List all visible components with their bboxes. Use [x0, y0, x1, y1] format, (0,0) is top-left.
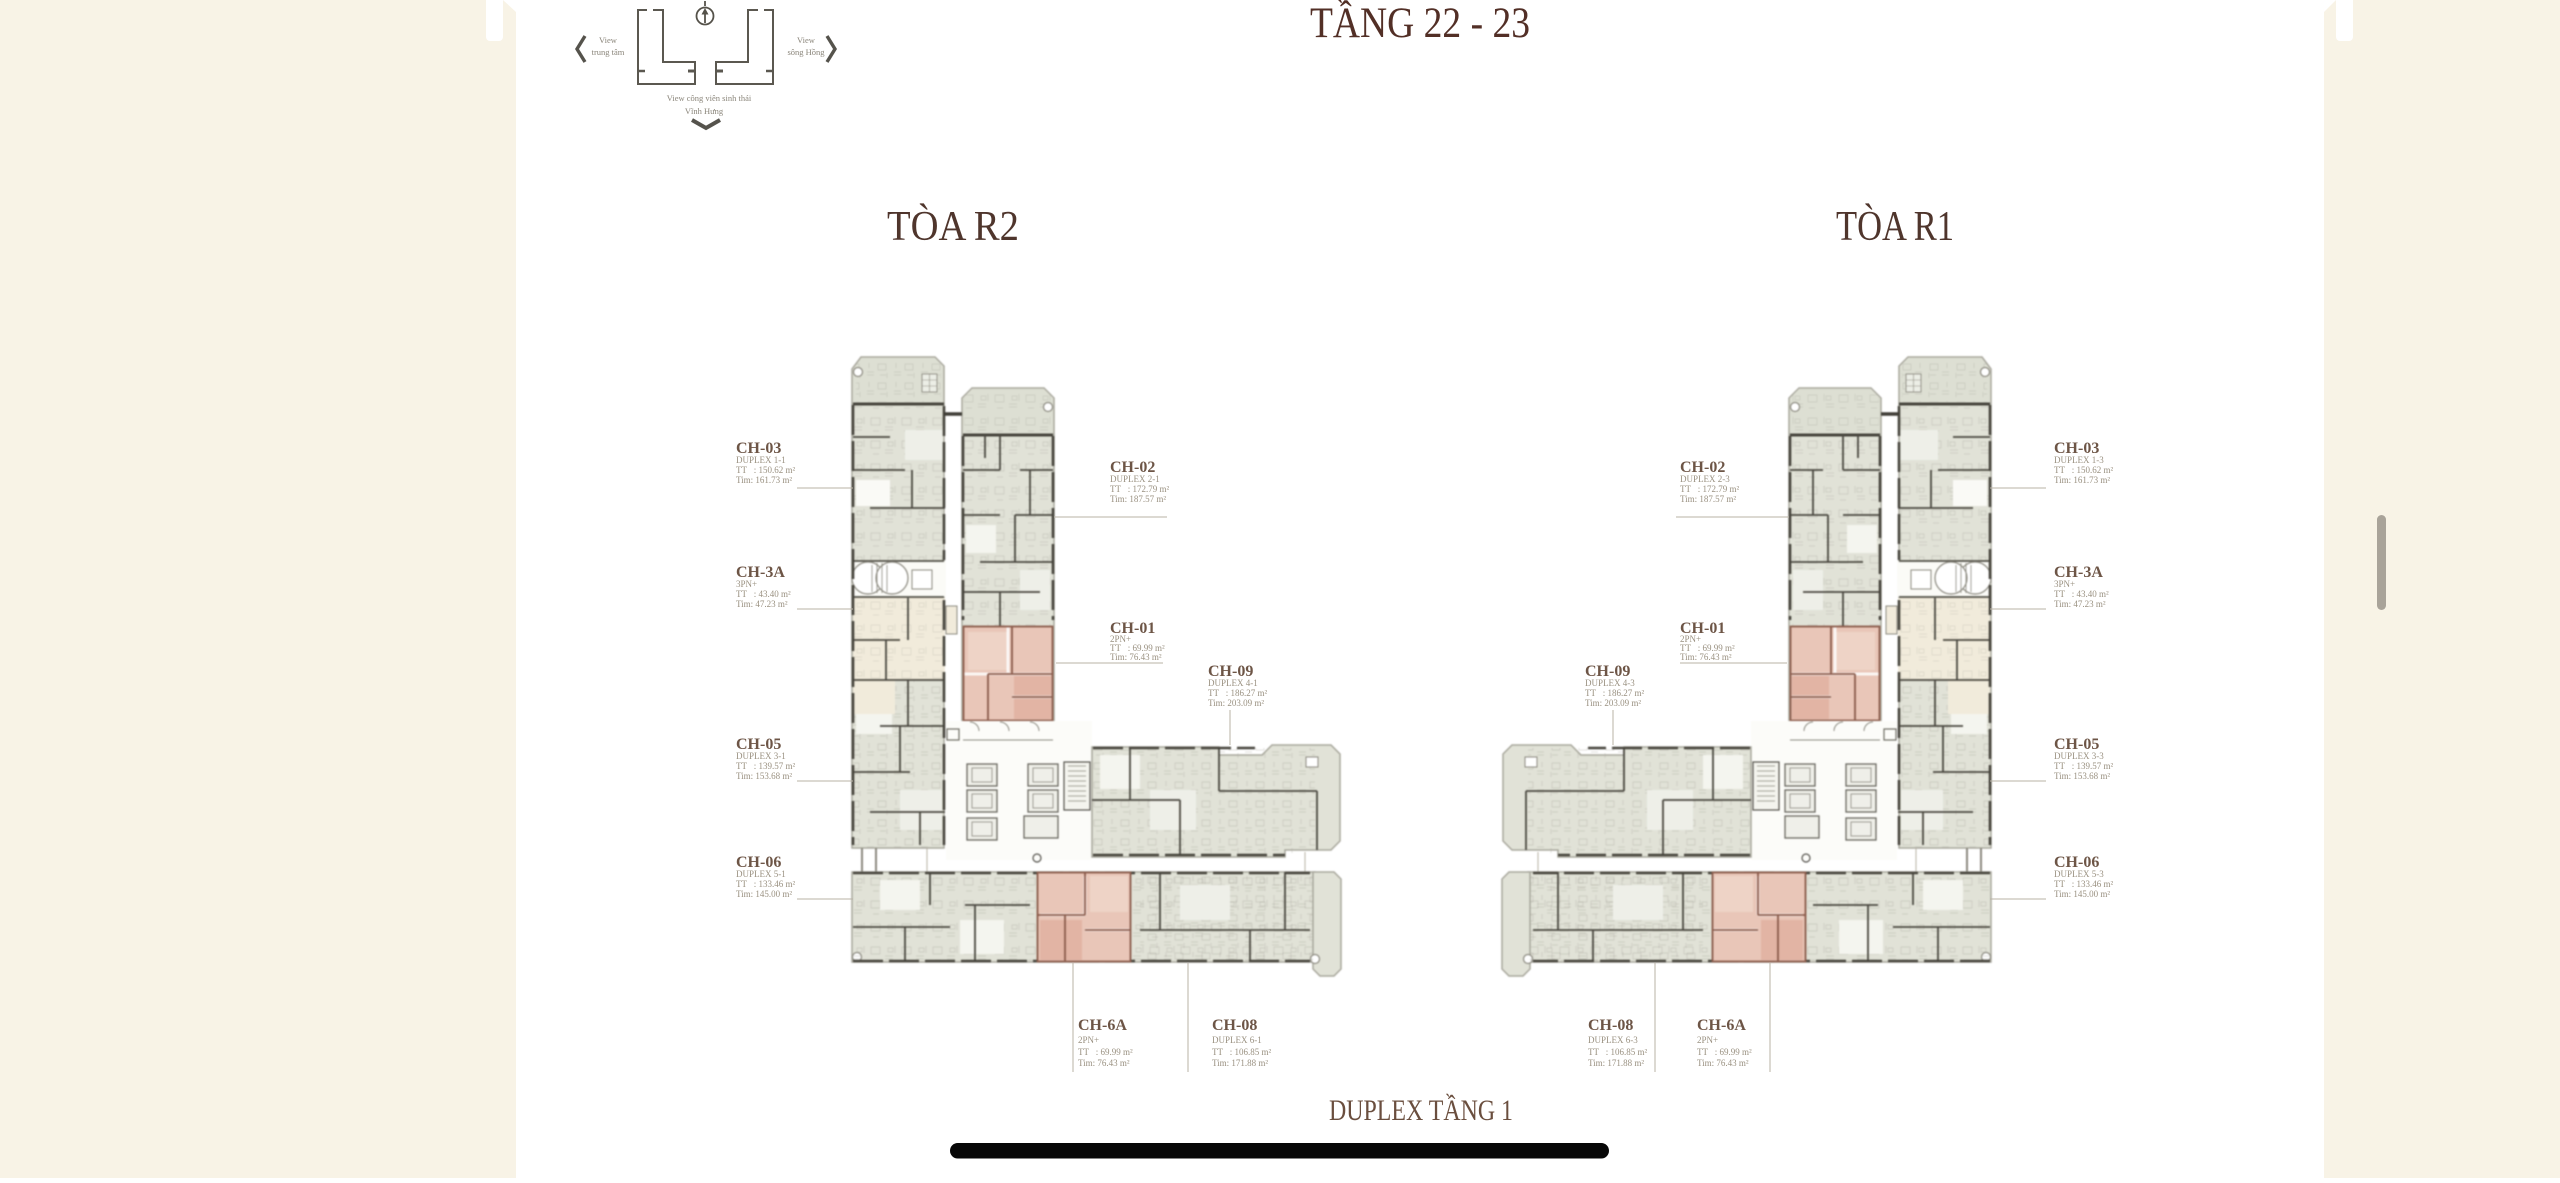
- svg-text:TẦNG 22 - 23: TẦNG 22 - 23: [1310, 0, 1530, 47]
- svg-text:TT : 186.27 m²: TT : 186.27 m²: [1585, 688, 1644, 698]
- svg-text:Tim: 171.88 m²: Tim: 171.88 m²: [1588, 1058, 1644, 1068]
- svg-text:TT : 106.85 m²: TT : 106.85 m²: [1212, 1047, 1271, 1057]
- svg-text:TT : 69.99 m²: TT : 69.99 m²: [1697, 1047, 1752, 1057]
- svg-text:View: View: [797, 35, 816, 45]
- svg-text:TÒA R2: TÒA R2: [887, 203, 1019, 250]
- svg-text:DUPLEX 1-3: DUPLEX 1-3: [2054, 455, 2104, 465]
- svg-text:Tim: 203.09 m²: Tim: 203.09 m²: [1208, 698, 1264, 708]
- svg-text:TT : 172.79 m²: TT : 172.79 m²: [1680, 484, 1739, 494]
- svg-text:TT : 186.27 m²: TT : 186.27 m²: [1208, 688, 1267, 698]
- svg-text:DUPLEX 6-3: DUPLEX 6-3: [1588, 1035, 1638, 1045]
- svg-text:Tim: 76.43 m²: Tim: 76.43 m²: [1110, 652, 1162, 662]
- svg-text:DUPLEX 5-3: DUPLEX 5-3: [2054, 869, 2104, 879]
- svg-text:Vĩnh Hưng: Vĩnh Hưng: [685, 106, 724, 116]
- svg-text:sông Hồng: sông Hồng: [787, 47, 825, 57]
- svg-text:TT : 139.57 m²: TT : 139.57 m²: [2054, 761, 2113, 771]
- svg-text:Tim: 145.00 m²: Tim: 145.00 m²: [736, 889, 792, 899]
- svg-text:Tim: 47.23 m²: Tim: 47.23 m²: [736, 599, 788, 609]
- svg-text:DUPLEX TẦNG 1: DUPLEX TẦNG 1: [1329, 1093, 1513, 1127]
- svg-text:CH-6A: CH-6A: [1078, 1017, 1127, 1034]
- svg-text:TÒA R1: TÒA R1: [1836, 203, 1954, 250]
- svg-text:DUPLEX 3-3: DUPLEX 3-3: [2054, 751, 2104, 761]
- svg-text:TT : 106.85 m²: TT : 106.85 m²: [1588, 1047, 1647, 1057]
- svg-text:3PN+: 3PN+: [736, 579, 757, 589]
- svg-text:Tim: 187.57 m²: Tim: 187.57 m²: [1680, 494, 1736, 504]
- svg-text:View công viên sinh thái: View công viên sinh thái: [667, 93, 752, 103]
- svg-text:CH-6A: CH-6A: [1697, 1017, 1746, 1034]
- svg-text:CH-08: CH-08: [1212, 1017, 1257, 1034]
- svg-text:Tim: 171.88 m²: Tim: 171.88 m²: [1212, 1058, 1268, 1068]
- svg-text:DUPLEX 1-1: DUPLEX 1-1: [736, 455, 786, 465]
- svg-text:TT : 150.62 m²: TT : 150.62 m²: [2054, 465, 2113, 475]
- svg-text:CH-08: CH-08: [1588, 1017, 1633, 1034]
- svg-text:TT : 139.57 m²: TT : 139.57 m²: [736, 761, 795, 771]
- svg-text:TT : 150.62 m²: TT : 150.62 m²: [736, 465, 795, 475]
- svg-text:Tim: 153.68 m²: Tim: 153.68 m²: [736, 771, 792, 781]
- svg-text:DUPLEX 4-3: DUPLEX 4-3: [1585, 678, 1635, 688]
- svg-text:View: View: [599, 35, 618, 45]
- svg-text:DUPLEX 3-1: DUPLEX 3-1: [736, 751, 786, 761]
- svg-text:DUPLEX 5-1: DUPLEX 5-1: [736, 869, 786, 879]
- svg-text:2PN+: 2PN+: [1078, 1035, 1099, 1045]
- svg-text:TT : 43.40 m²: TT : 43.40 m²: [2054, 589, 2109, 599]
- svg-text:Tim: 76.43 m²: Tim: 76.43 m²: [1078, 1058, 1130, 1068]
- svg-text:3PN+: 3PN+: [2054, 579, 2075, 589]
- svg-text:DUPLEX 2-3: DUPLEX 2-3: [1680, 474, 1730, 484]
- svg-text:Tim: 187.57 m²: Tim: 187.57 m²: [1110, 494, 1166, 504]
- svg-text:Tim: 76.43 m²: Tim: 76.43 m²: [1697, 1058, 1749, 1068]
- svg-text:DUPLEX 2-1: DUPLEX 2-1: [1110, 474, 1160, 484]
- svg-text:trung tâm: trung tâm: [592, 47, 625, 57]
- svg-text:Tim: 47.23 m²: Tim: 47.23 m²: [2054, 599, 2106, 609]
- svg-text:DUPLEX 6-1: DUPLEX 6-1: [1212, 1035, 1262, 1045]
- svg-text:TT : 133.46 m²: TT : 133.46 m²: [2054, 879, 2113, 889]
- svg-text:DUPLEX 4-1: DUPLEX 4-1: [1208, 678, 1258, 688]
- svg-text:Tim: 203.09 m²: Tim: 203.09 m²: [1585, 698, 1641, 708]
- svg-text:Tim: 153.68 m²: Tim: 153.68 m²: [2054, 771, 2110, 781]
- svg-text:TT : 69.99 m²: TT : 69.99 m²: [1078, 1047, 1133, 1057]
- svg-text:TT : 172.79 m²: TT : 172.79 m²: [1110, 484, 1169, 494]
- svg-text:Tim: 145.00 m²: Tim: 145.00 m²: [2054, 889, 2110, 899]
- svg-text:Tim: 76.43 m²: Tim: 76.43 m²: [1680, 652, 1732, 662]
- svg-text:Tim: 161.73 m²: Tim: 161.73 m²: [736, 475, 792, 485]
- svg-text:TT : 133.46 m²: TT : 133.46 m²: [736, 879, 795, 889]
- svg-text:TT : 43.40 m²: TT : 43.40 m²: [736, 589, 791, 599]
- svg-text:2PN+: 2PN+: [1697, 1035, 1718, 1045]
- svg-text:Tim: 161.73 m²: Tim: 161.73 m²: [2054, 475, 2110, 485]
